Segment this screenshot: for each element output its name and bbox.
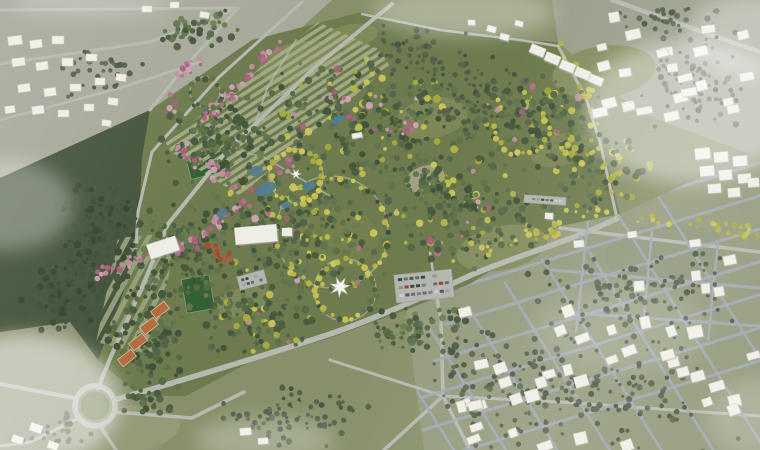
aerial-scene-svg	[0, 0, 760, 450]
park-masterplan-aerial	[0, 0, 760, 450]
